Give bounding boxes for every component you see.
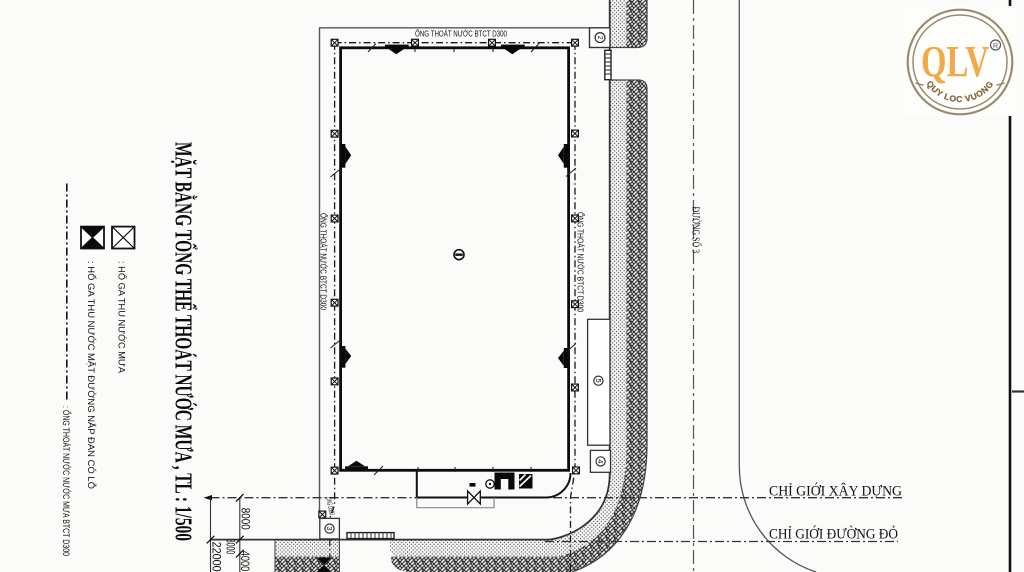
svg-text:: HỐ GA THU NƯỚC MẶT ĐƯỜNG NẮP: : HỐ GA THU NƯỚC MẶT ĐƯỜNG NẮP ĐAN CÓ LỖ — [85, 261, 97, 489]
svg-text:22000: 22000 — [210, 542, 222, 572]
svg-text:ỐNG THOÁT NƯỚC BTCT D300: ỐNG THOÁT NƯỚC BTCT D300 — [576, 212, 586, 312]
svg-text:: ỐNG THOÁT NƯỚC NƯỚC MƯA BTC: : ỐNG THOÁT NƯỚC NƯỚC MƯA BTCT D300 — [60, 406, 72, 556]
svg-text:ĐƯỜNG SỐ 3: ĐƯỜNG SỐ 3 — [689, 207, 702, 254]
svg-text:ỐNG THOÁT NƯỚC BTCT D300: ỐNG THOÁT NƯỚC BTCT D300 — [319, 213, 329, 310]
svg-text:5: 5 — [594, 379, 603, 383]
svg-text:4: 4 — [596, 459, 605, 463]
svg-text:: HỐ GA THU NƯỚC MƯA: : HỐ GA THU NƯỚC MƯA — [116, 261, 128, 374]
svg-text:R: R — [993, 43, 998, 50]
svg-text:MẶT BẰNG TỔNG THỂ THOÁT NƯỚC M: MẶT BẰNG TỔNG THỂ THOÁT NƯỚC MƯA , TL : … — [170, 142, 197, 541]
svg-text:CHỈ GIỚI XÂY DỰNG: CHỈ GIỚI XÂY DỰNG — [769, 483, 902, 500]
svg-text:3: 3 — [325, 526, 334, 530]
svg-text:ỐNG THOÁT NƯỚC BTCT D300: ỐNG THOÁT NƯỚC BTCT D300 — [415, 28, 507, 38]
svg-text:3000: 3000 — [223, 539, 235, 555]
svg-text:2: 2 — [596, 36, 603, 40]
svg-text:8000: 8000 — [239, 508, 251, 530]
svg-text:CHỈ GIỚI ĐƯỜNG ĐỎ: CHỈ GIỚI ĐƯỜNG ĐỎ — [769, 526, 898, 543]
svg-text:4000: 4000 — [238, 551, 250, 572]
svg-text:QLV: QLV — [921, 37, 989, 86]
